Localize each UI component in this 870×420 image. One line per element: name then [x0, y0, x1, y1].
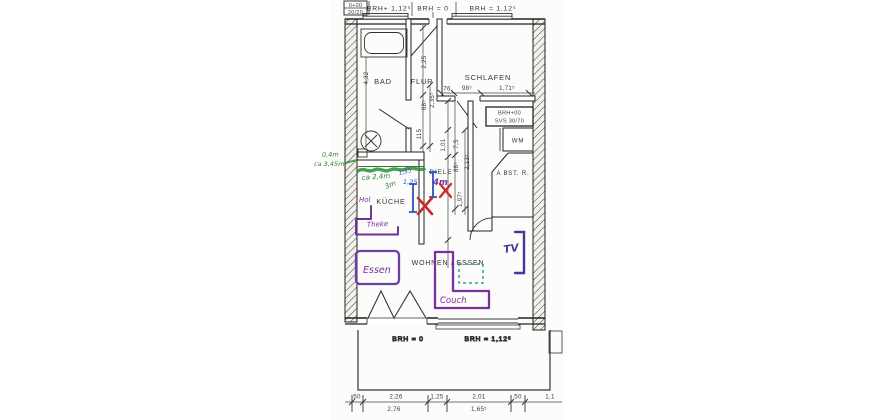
bdim-50-left: 50 — [353, 394, 361, 401]
bdim-165: 1,65⁵ — [471, 406, 487, 413]
dim-mid-3: 88⁵ — [453, 162, 460, 172]
dim-bad-height: 4,32 — [364, 71, 370, 84]
room-label-abstellraum: A BST. R. — [497, 171, 530, 177]
room-label-bad: BAD — [374, 77, 392, 86]
scan-background — [330, 0, 565, 420]
dim-flur-v1: 2,25 — [422, 55, 428, 68]
purple-couch-text: Couch — [440, 296, 467, 306]
top-label-left: BRH+ 1,12⁵ — [367, 6, 411, 13]
top-label-right: BRH = 1,12⁵ — [470, 6, 517, 13]
green-wall-text2: ca 3,45m — [314, 160, 344, 168]
bdim-50-right: 50 — [514, 394, 522, 401]
marker-box-line1: 0+00 — [349, 3, 362, 9]
purple-hol-text: Hol — [359, 196, 371, 204]
floorplan-scan: 0+00 20/20 BRH+ 1,12⁵ BRH = 0 BRH = 1,12… — [0, 0, 870, 420]
dim-mid-2: 7,5 — [454, 139, 460, 149]
room-label-kueche: KÜCHE — [376, 197, 405, 206]
dim-mid-4: 2,13⁵ — [464, 154, 471, 170]
purple-essen-text: Essen — [363, 265, 391, 276]
dim-schlafen-3: 1,71⁵ — [499, 85, 515, 92]
dim-schlafen-2: 98⁵ — [462, 85, 472, 92]
dim-mid-5: 1,97⁵ — [457, 191, 464, 207]
dim-flur-v3: 68⁵ — [421, 100, 428, 110]
dim-mid-1: 1,01 — [441, 138, 447, 151]
balcony-label-left: BRH = 0 — [392, 336, 423, 343]
room-label-schlafen: SCHLAFEN — [465, 73, 511, 82]
purple-tv-text: TV — [503, 242, 521, 256]
room-label-wm: WM — [512, 138, 525, 145]
bdim-11: 1,1 — [545, 394, 555, 401]
dim-flur-v2: 2,35⁵ — [429, 92, 436, 108]
purple-theke-text: Theke — [367, 220, 389, 229]
marker-box-line2: 20/20 — [348, 10, 363, 16]
room-label-flur: FLUR — [411, 77, 434, 86]
bdim-226: 2,26 — [389, 394, 403, 401]
blue-dim2-text: 1,25 — [403, 178, 417, 186]
top-label-mid: BRH = 0 — [417, 6, 448, 13]
bdim-201: 2,01 — [472, 394, 486, 401]
bdim-125: 1,25 — [430, 394, 444, 401]
green-wall-text1: 0,4m — [322, 150, 339, 159]
floorplan-svg: 0+00 20/20 BRH+ 1,12⁵ BRH = 0 BRH = 1,12… — [0, 0, 870, 420]
bdim-276: 2,76 — [387, 406, 401, 413]
svs-box-line1: BRH+00 — [498, 111, 521, 117]
dim-flur-v4: 115 — [417, 128, 423, 139]
dim-schlafen-1: 76 — [443, 87, 451, 93]
svs-box-line2: SVS 30/70 — [495, 119, 524, 125]
balcony-label-right: BRH = 1,12⁵ — [465, 336, 512, 343]
